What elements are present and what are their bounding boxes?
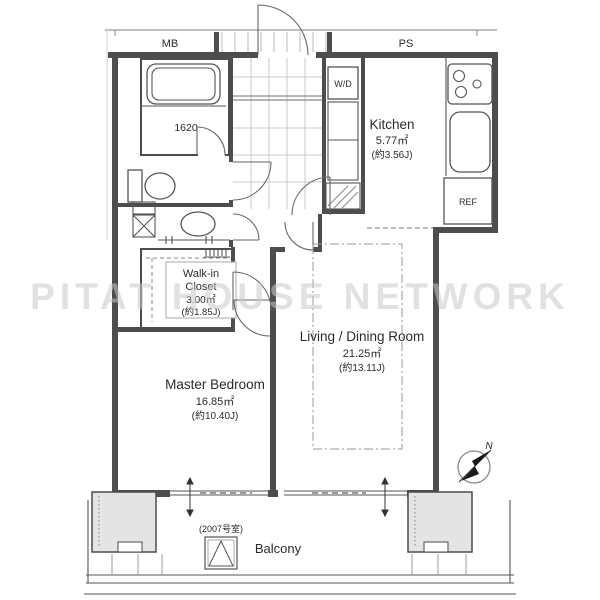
window-slide-arrow <box>187 478 388 516</box>
watermark-text: PITAT HOUSE NETWORK <box>30 276 570 317</box>
compass-north-label: N <box>485 441 493 452</box>
balcony: (2007号室) Balcony <box>84 492 516 594</box>
kitchen-sink <box>450 112 490 172</box>
washroom <box>133 202 259 244</box>
living-area-tatami: (約13.11J) <box>339 361 385 374</box>
building-outline <box>105 30 497 240</box>
floor-plan-page: MB PS <box>0 0 600 600</box>
kitchen-area-sqm: 5.77㎡ <box>376 134 408 147</box>
bedroom-area-tatami: (約10.40J) <box>192 409 239 422</box>
master-bedroom: Master Bedroom 16.85㎡ (約10.40J) <box>165 377 265 422</box>
kitchen-name: Kitchen <box>369 117 414 132</box>
living-door-swing <box>285 222 313 250</box>
kitchen-area-tatami: (約3.56J) <box>371 148 412 161</box>
entrance-porch-tiles <box>222 32 326 52</box>
living-name: Living / Dining Room <box>300 329 425 344</box>
washbasin <box>181 212 215 236</box>
balcony-windows <box>170 478 407 516</box>
bathroom-door-swing <box>197 127 225 155</box>
toilet-bowl <box>145 173 175 199</box>
balcony-name: Balcony <box>255 541 302 556</box>
bathroom: 1620 <box>141 59 229 157</box>
refrigerator-label: REF <box>459 197 478 207</box>
bathtub-size-label: 1620 <box>174 122 198 134</box>
floor-plan-drawing: MB PS <box>0 0 600 600</box>
washer-dryer-label: W/D <box>334 79 352 89</box>
hanger-rail <box>204 250 230 257</box>
entrance-hall-tiles <box>233 58 322 209</box>
tatami-zone-outline <box>313 244 402 449</box>
bedroom-area-sqm: 16.85㎡ <box>196 395 235 408</box>
bedroom-name: Master Bedroom <box>165 377 265 392</box>
evacuation-hatch-icon <box>205 537 237 569</box>
toilet-tank <box>128 170 142 202</box>
stove <box>448 64 492 104</box>
north-compass-icon: N <box>458 441 493 483</box>
balcony-unit-note: (2007号室) <box>199 523 243 534</box>
pipe-space-label: PS <box>399 38 414 50</box>
meter-box-label: MB <box>162 38 179 50</box>
utility-column: W/D <box>326 67 360 209</box>
storage-cabinet <box>328 102 358 180</box>
washroom-door-swing <box>233 214 259 240</box>
toilet-door-swing <box>233 162 271 200</box>
bathtub <box>147 64 220 104</box>
living-area-sqm: 21.25㎡ <box>343 347 382 360</box>
living-dining-room: Living / Dining Room 21.25㎡ (約13.11J) <box>300 244 425 449</box>
